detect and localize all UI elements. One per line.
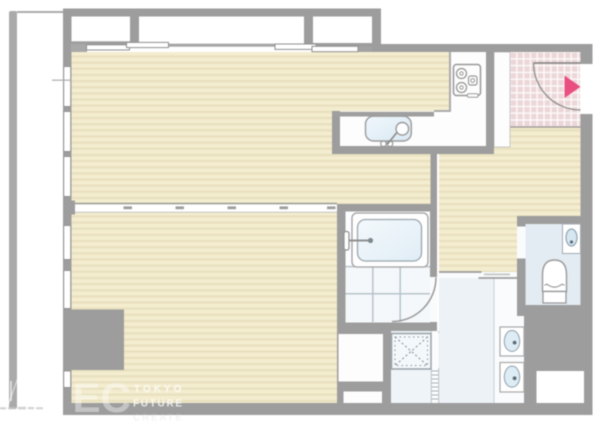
svg-text:CREATE: CREATE (133, 413, 184, 424)
svg-text:EC: EC (73, 374, 131, 421)
svg-text:TOKYO: TOKYO (134, 384, 184, 395)
svg-text:FUTURE: FUTURE (133, 399, 184, 410)
